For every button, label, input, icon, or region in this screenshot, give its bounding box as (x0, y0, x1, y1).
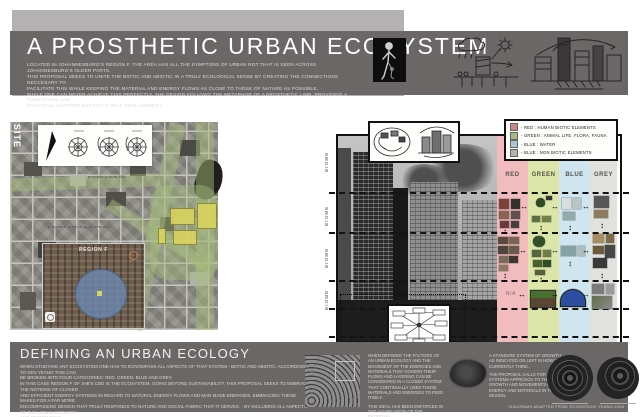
flow-arrow-horizontal: ↔ (582, 203, 590, 211)
footer-note-left: WHEN DEFINING THE FACTORS OF AN URBAN EC… (368, 353, 446, 417)
thumb-water (562, 198, 571, 209)
thumb-water (563, 212, 575, 220)
city-sketch-icon (527, 33, 625, 95)
map-annotation-wind: prevailing wind NW (88, 174, 126, 179)
thumb-abiotic (606, 234, 614, 243)
footer-paragraph: WHEN STUDYING ANY ECOSYSTEM ONE HAS TO E… (20, 364, 310, 417)
thumb-human (511, 199, 520, 209)
thumb-abiotic (593, 246, 604, 254)
flow-arrow-horizontal: ↔ (582, 247, 590, 255)
intro-line: THIS PROPOSAL SEEKS TO UNITE THE BIOTIC … (27, 74, 362, 86)
thumb-human (498, 237, 508, 244)
flow-arrow-vertical: ↕ (600, 272, 604, 280)
page-title: A PROSTHETIC URBAN ECOSYSTEM (27, 33, 489, 60)
biome-label-4: BIOME (324, 278, 333, 322)
thumb-flora (536, 198, 545, 207)
thumb-abiotic (593, 258, 607, 268)
ecosystem-sketch-icon (452, 37, 522, 91)
legend-swatch-grey (510, 149, 518, 157)
thumb-water (561, 246, 576, 256)
intro-paragraph: LOCATED IN JOHANNESBURG'S REGION F. THE … (27, 62, 362, 109)
thumb-flora (533, 236, 545, 247)
growth-rings-diagram (305, 355, 360, 407)
column-label-green: GREEN (528, 172, 559, 178)
biome-divider (329, 280, 629, 282)
cycle-diagram-panel (368, 121, 460, 163)
footer-line: AND EFFICIENT ENERGY SYSTEMS IN REGARD T… (20, 393, 310, 404)
thumb-human (499, 256, 508, 263)
note-paragraph: WHEN DEFINING THE FACTORS OF AN URBAN EC… (368, 353, 446, 401)
flow-arrow-vertical: ↕ (539, 224, 543, 232)
prosthetic-man-image (373, 38, 406, 82)
flow-arrow-horizontal: ↔ (518, 291, 526, 299)
legend-row: - GREEN : ANIMAL LIFE, FLORA, FAUNA (521, 133, 607, 138)
thumb-fauna (533, 260, 542, 267)
thumb-human (509, 237, 519, 244)
diagram-source-caption: *DIAGRAMS ADAPTED FROM 'ECODESIGN' YEANG… (458, 404, 624, 409)
thumb-human (511, 211, 520, 219)
note-paragraph: THIS IDEAL HAS BEEN ENFORCED IN THE ASSI… (368, 404, 446, 417)
biome-label-1: BIOME (324, 140, 333, 184)
legend-row: - BLUE : WATER (521, 142, 555, 147)
wind-rose-panel (38, 125, 152, 166)
flow-arrow-horizontal: ↔ (551, 247, 559, 255)
intro-line: LOCATED IN JOHANNESBURG'S REGION F. THE … (27, 62, 362, 74)
footer-line: WHEN STUDYING ANY ECOSYSTEM ONE HAS TO E… (20, 364, 310, 375)
intro-line: FACILITATE THIS WHILE KEEPING THE MATERI… (27, 86, 362, 92)
column-label-grey: GREY (590, 172, 617, 178)
biome-divider (329, 336, 629, 338)
intro-line: PRACTICAL SUPPORT BUT NOT A TRUE REPLACE… (27, 103, 362, 109)
thumb-abiotic (593, 234, 604, 243)
thumb-abiotic (594, 196, 609, 208)
legend-row: - RED : HUMAN BIOTIC ELEMENTS (521, 125, 596, 130)
thumb-human (499, 199, 509, 209)
legend-swatch-blue (510, 140, 518, 148)
thumb-abiotic (594, 210, 608, 218)
legend-swatch-green (510, 132, 518, 140)
biome-divider (329, 308, 629, 310)
thumb-abiotic (605, 245, 615, 258)
flow-arrow-horizontal: ↔ (519, 247, 527, 255)
thumb-human (509, 246, 519, 254)
thumb-abiotic (592, 284, 604, 294)
thumb-fauna (542, 216, 551, 222)
site-label: SITE (12, 124, 22, 148)
biome-label-3: BIOME (324, 236, 333, 280)
map-annotation-green: proposed green egg of new city (48, 224, 110, 229)
thumb-water (573, 198, 581, 209)
biome-divider (329, 232, 629, 234)
systems-circle-diagram-1 (547, 355, 593, 401)
thumb-human (509, 256, 518, 263)
presentation-board: A PROSTHETIC URBAN ECOSYSTEM LOCATED IN … (0, 0, 640, 417)
region-inset-map: REGION F (42, 243, 145, 329)
thumb-fauna (543, 260, 551, 267)
intro-line: WHILE ONE CAN NEVER ACHIEVE THIS PERFECT… (27, 92, 362, 104)
inset-marker-ring (129, 251, 138, 260)
flow-arrow-vertical: ↕ (568, 260, 572, 268)
flow-arrow-horizontal: ↔ (582, 291, 590, 299)
flow-arrow-vertical: ↕ (503, 272, 507, 280)
flow-arrow-vertical: ↕ (600, 222, 604, 230)
legend-swatch-red (510, 123, 518, 131)
thumb-fauna (532, 216, 540, 222)
flow-arrow-vertical: ↕ (503, 228, 507, 236)
inset-site-dot (97, 291, 102, 296)
biome-divider (329, 192, 629, 194)
thumb-fauna (532, 250, 541, 257)
flow-arrow-vertical: ↕ (568, 224, 572, 232)
footer-line: IN THIS CASE REGION F OF JHB'S CBD IS TH… (20, 381, 310, 392)
colour-legend: - RED : HUMAN BIOTIC ELEMENTS - GREEN : … (504, 119, 618, 161)
flow-arrow-vertical: ↕ (539, 276, 543, 284)
thumb-human (498, 246, 508, 254)
systems-circle-diagram-2 (597, 357, 639, 399)
thumb-human (499, 211, 509, 219)
column-band-blue (559, 136, 590, 345)
column-label-red: RED (497, 172, 528, 178)
thumb-human (511, 221, 519, 228)
flow-arrow-horizontal: ↔ (520, 203, 528, 211)
footer-line: ENCOMPASSING DESIGN THAT TRULY RESPONDS … (20, 404, 310, 415)
legend-row: - BLUE : NON BIOTIC ELEMENTS (521, 150, 592, 155)
footer-heading: DEFINING AN URBAN ECOLOGY (20, 346, 250, 361)
column-label-blue: BLUE (559, 172, 590, 178)
thumb-abiotic (606, 284, 614, 294)
map-source-logo (45, 312, 55, 322)
flow-arrow-horizontal: ↔ (551, 291, 559, 299)
thumb-fauna (546, 196, 552, 200)
thumb-fauna (543, 250, 551, 257)
thumb-abiotic (592, 296, 612, 309)
flow-arrow-horizontal: ↔ (551, 203, 559, 211)
